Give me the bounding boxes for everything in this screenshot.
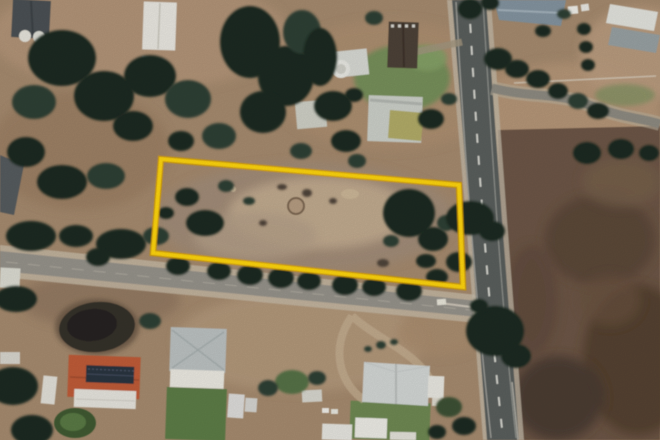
satellite-image [0, 0, 660, 440]
photo-grain [0, 0, 660, 440]
aerial-photo[interactable] [0, 0, 660, 440]
